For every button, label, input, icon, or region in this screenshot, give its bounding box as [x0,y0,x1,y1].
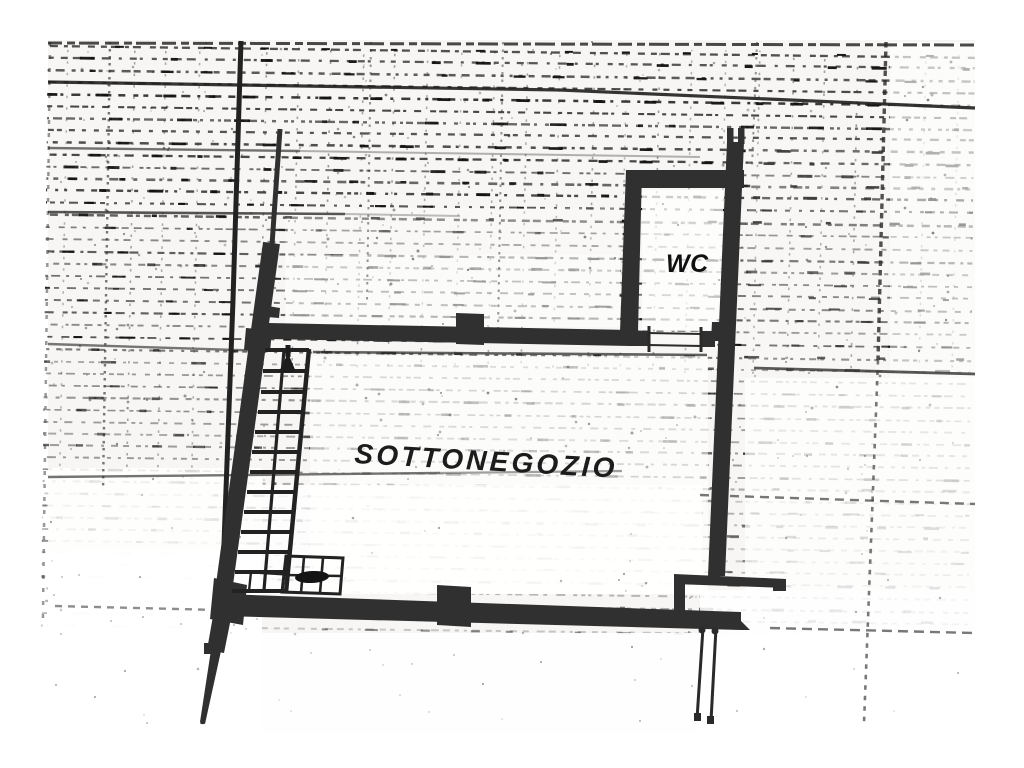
svg-text:WC: WC [666,250,709,278]
